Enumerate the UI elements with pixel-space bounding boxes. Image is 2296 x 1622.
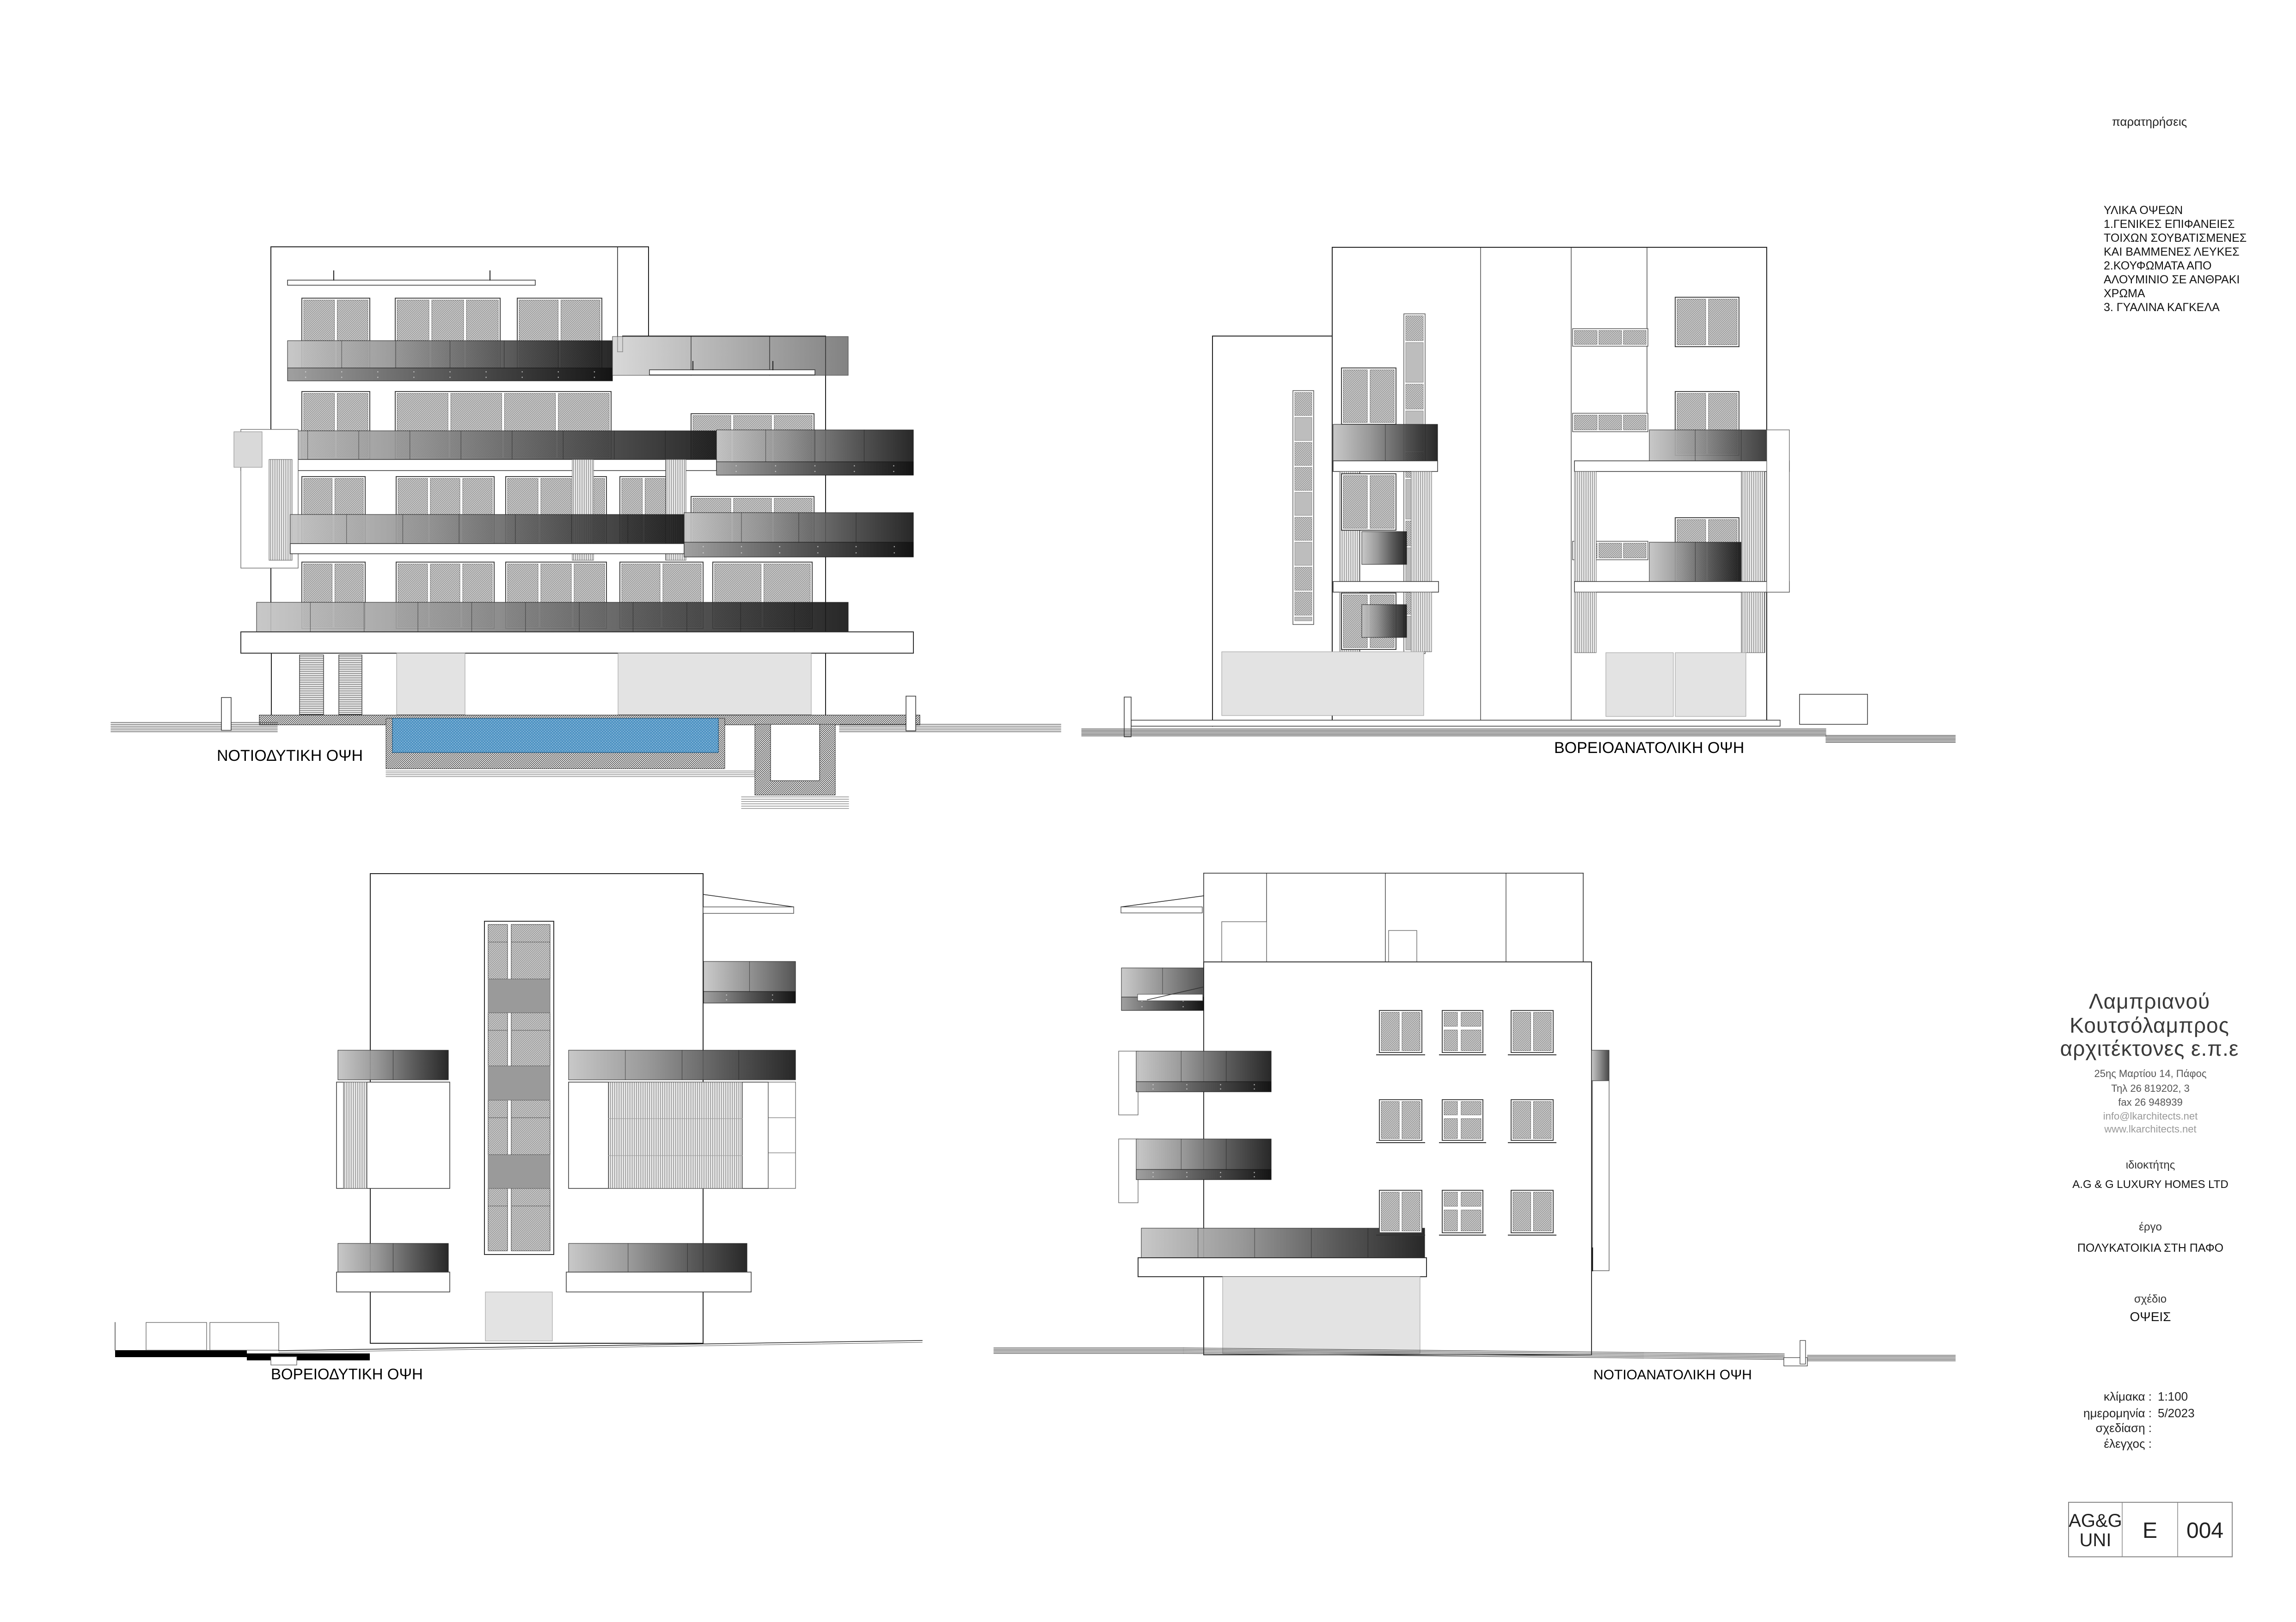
svg-text:σχεδίαση :: σχεδίαση : <box>2095 1421 2152 1435</box>
svg-text:ΚΑΙ ΒΑΜΜΕΝΕΣ ΛΕΥΚΕΣ: ΚΑΙ ΒΑΜΜΕΝΕΣ ΛΕΥΚΕΣ <box>2104 245 2240 258</box>
svg-text:ΟΨΕΙΣ: ΟΨΕΙΣ <box>2130 1310 2171 1324</box>
svg-text:ΒΟΡΕΙΟΔΥΤΙΚΗ ΟΨΗ: ΒΟΡΕΙΟΔΥΤΙΚΗ ΟΨΗ <box>271 1365 423 1383</box>
svg-text:5/2023: 5/2023 <box>2158 1406 2195 1420</box>
svg-text:ΠΟΛΥΚΑΤΟΙΚΙΑ ΣΤΗ ΠΑΦΟ: ΠΟΛΥΚΑΤΟΙΚΙΑ ΣΤΗ ΠΑΦΟ <box>2077 1242 2223 1255</box>
svg-text:ΥΛΙΚΑ ΟΨΕΩΝ: ΥΛΙΚΑ ΟΨΕΩΝ <box>2104 204 2183 217</box>
svg-text:3. ΓΥΑΛΙΝΑ ΚΑΓΚΕΛΑ: 3. ΓΥΑΛΙΝΑ ΚΑΓΚΕΛΑ <box>2104 301 2220 314</box>
svg-text:AG&G: AG&G <box>2069 1511 2122 1531</box>
svg-text:2.ΚΟΥΦΩΜΑΤΑ ΑΠΟ: 2.ΚΟΥΦΩΜΑΤΑ ΑΠΟ <box>2104 259 2211 272</box>
svg-text:www.lkarchitects.net: www.lkarchitects.net <box>2104 1123 2196 1135</box>
svg-text:ημερομηνία :: ημερομηνία : <box>2083 1406 2152 1420</box>
svg-text:fax 26 948939: fax 26 948939 <box>2118 1096 2182 1108</box>
svg-text:ΝΟΤΙΟΑΝΑΤΟΛΙΚΗ ΟΨΗ: ΝΟΤΙΟΑΝΑΤΟΛΙΚΗ ΟΨΗ <box>1593 1367 1752 1383</box>
svg-text:ΒΟΡΕΙΟΑΝΑΤΟΛΙΚΗ ΟΨΗ: ΒΟΡΕΙΟΑΝΑΤΟΛΙΚΗ ΟΨΗ <box>1554 739 1744 757</box>
svg-text:παρατηρήσεις: παρατηρήσεις <box>2112 115 2187 129</box>
svg-text:ΤΟΙΧΩΝ ΣΟΥΒΑΤΙΣΜΕΝΕΣ: ΤΟΙΧΩΝ ΣΟΥΒΑΤΙΣΜΕΝΕΣ <box>2104 232 2247 245</box>
svg-text:ΝΟΤΙΟΔΥΤΙΚΗ ΟΨΗ: ΝΟΤΙΟΔΥΤΙΚΗ ΟΨΗ <box>217 747 363 765</box>
svg-text:1:100: 1:100 <box>2158 1389 2188 1403</box>
svg-text:κλίμακα :: κλίμακα : <box>2104 1389 2152 1403</box>
svg-text:έλεγχος :: έλεγχος : <box>2104 1437 2152 1451</box>
svg-text:έργο: έργο <box>2139 1221 2162 1233</box>
svg-text:αρχιτέκτονες ε.π.ε: αρχιτέκτονες ε.π.ε <box>2060 1036 2239 1060</box>
svg-text:σχέδιο: σχέδιο <box>2134 1293 2167 1305</box>
svg-text:UNI: UNI <box>2080 1530 2112 1550</box>
svg-text:25ης Μαρτίου 14, Πάφος: 25ης Μαρτίου 14, Πάφος <box>2094 1068 2206 1079</box>
svg-text:Τηλ 26 819202, 3: Τηλ 26 819202, 3 <box>2111 1083 2190 1094</box>
svg-text:info@lkarchitects.net: info@lkarchitects.net <box>2103 1110 2198 1122</box>
svg-text:1.ΓΕΝΙΚΕΣ ΕΠΙΦΑΝΕΙΕΣ: 1.ΓΕΝΙΚΕΣ ΕΠΙΦΑΝΕΙΕΣ <box>2104 218 2235 231</box>
svg-text:Λαμπριανού: Λαμπριανού <box>2089 989 2210 1013</box>
svg-text:E: E <box>2143 1518 2157 1543</box>
svg-text:ΑΛΟΥΜΙΝΙΟ ΣΕ ΑΝΘΡΑΚΙ: ΑΛΟΥΜΙΝΙΟ ΣΕ ΑΝΘΡΑΚΙ <box>2104 273 2240 286</box>
svg-text:Κουτσόλαμπρος: Κουτσόλαμπρος <box>2069 1013 2229 1037</box>
svg-text:ΧΡΩΜΑ: ΧΡΩΜΑ <box>2104 287 2145 300</box>
svg-text:ιδιοκτήτης: ιδιοκτήτης <box>2126 1159 2175 1171</box>
svg-text:004: 004 <box>2186 1518 2223 1543</box>
svg-text:A.G & G LUXURY HOMES LTD: A.G & G LUXURY HOMES LTD <box>2072 1178 2228 1191</box>
